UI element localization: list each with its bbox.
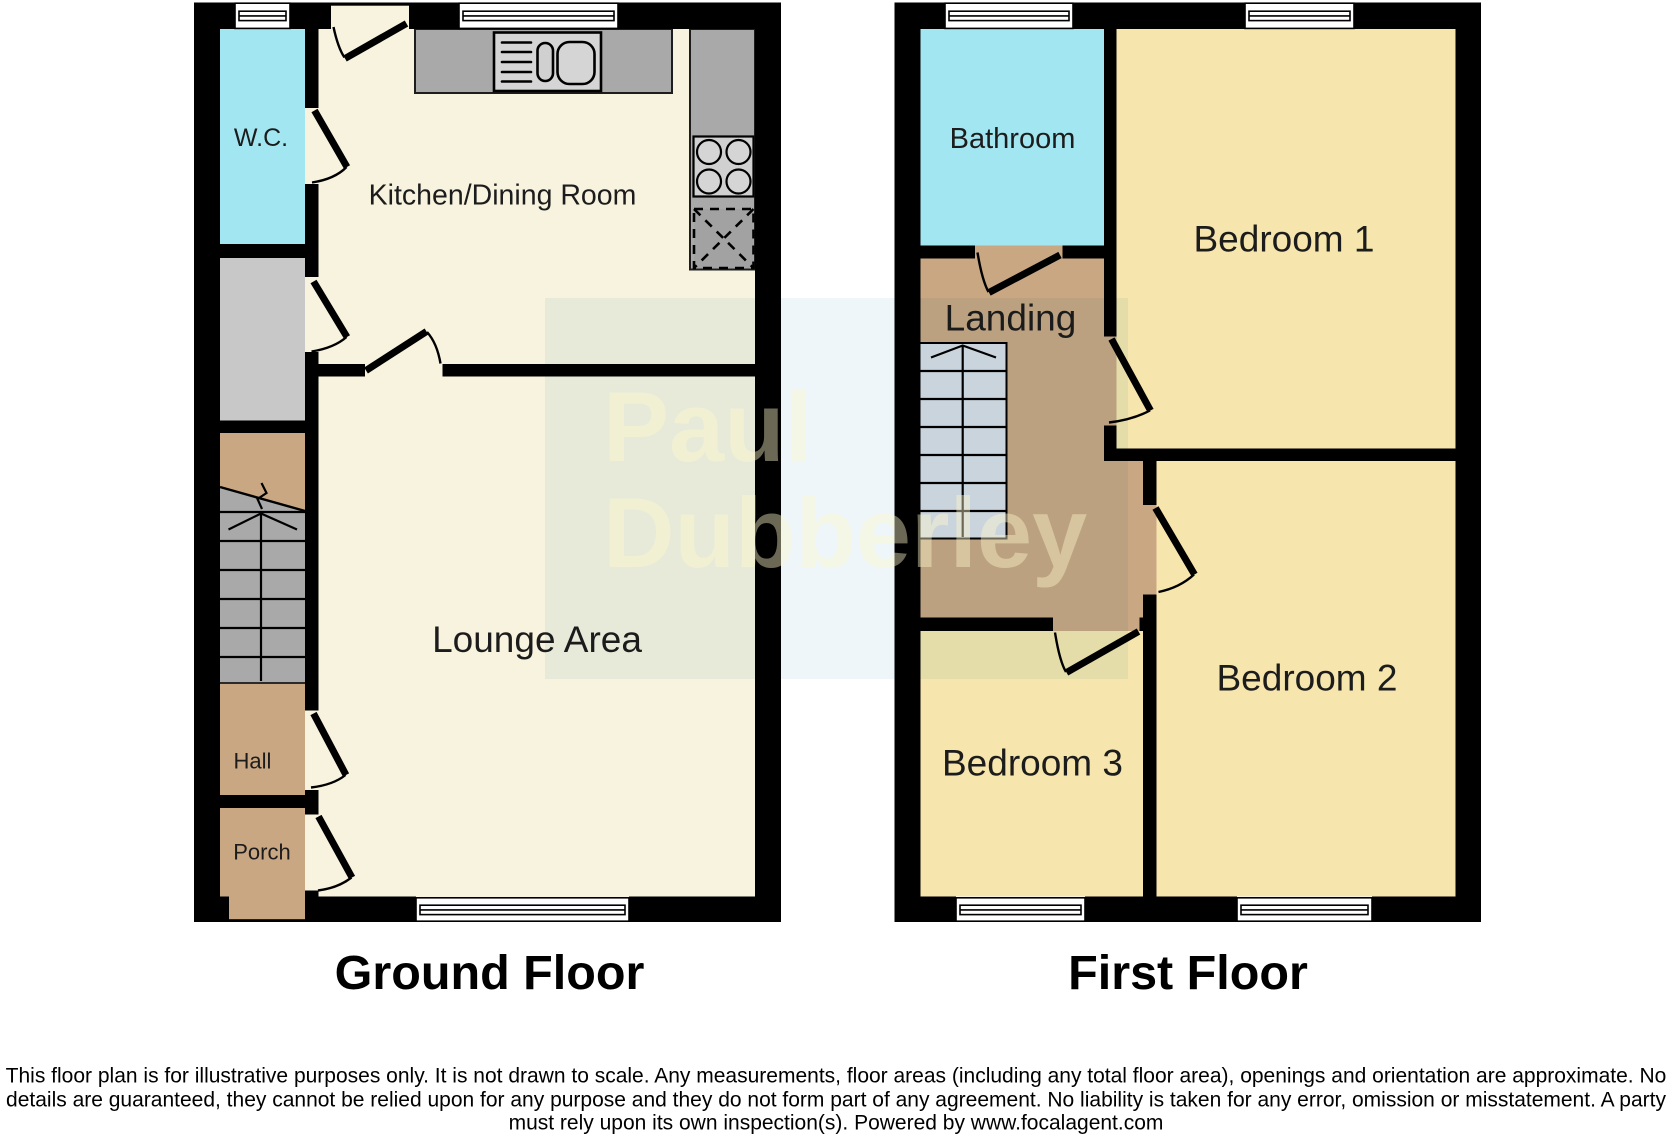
svg-text:must rely upon its own inspect: must rely upon its own inspection(s). Po… [509, 1112, 1164, 1135]
svg-text:Bedroom 3: Bedroom 3 [942, 743, 1123, 784]
svg-text:This floor plan is for illustr: This floor plan is for illustrative purp… [6, 1065, 1667, 1088]
svg-text:First Floor: First Floor [1068, 946, 1308, 1000]
svg-text:Bathroom: Bathroom [950, 123, 1076, 155]
svg-text:Bedroom 2: Bedroom 2 [1217, 658, 1398, 699]
svg-text:Bedroom 1: Bedroom 1 [1194, 219, 1375, 260]
svg-text:Paul: Paul [603, 371, 812, 482]
svg-text:W.C.: W.C. [234, 124, 288, 152]
svg-text:Dubberley: Dubberley [603, 477, 1087, 588]
svg-text:Porch: Porch [233, 840, 290, 865]
svg-text:Kitchen/Dining Room: Kitchen/Dining Room [369, 180, 637, 212]
svg-text:details are guaranteed, they c: details are guaranteed, they cannot be r… [6, 1089, 1666, 1112]
svg-text:Ground Floor: Ground Floor [335, 946, 645, 1000]
svg-text:Hall: Hall [234, 749, 272, 774]
